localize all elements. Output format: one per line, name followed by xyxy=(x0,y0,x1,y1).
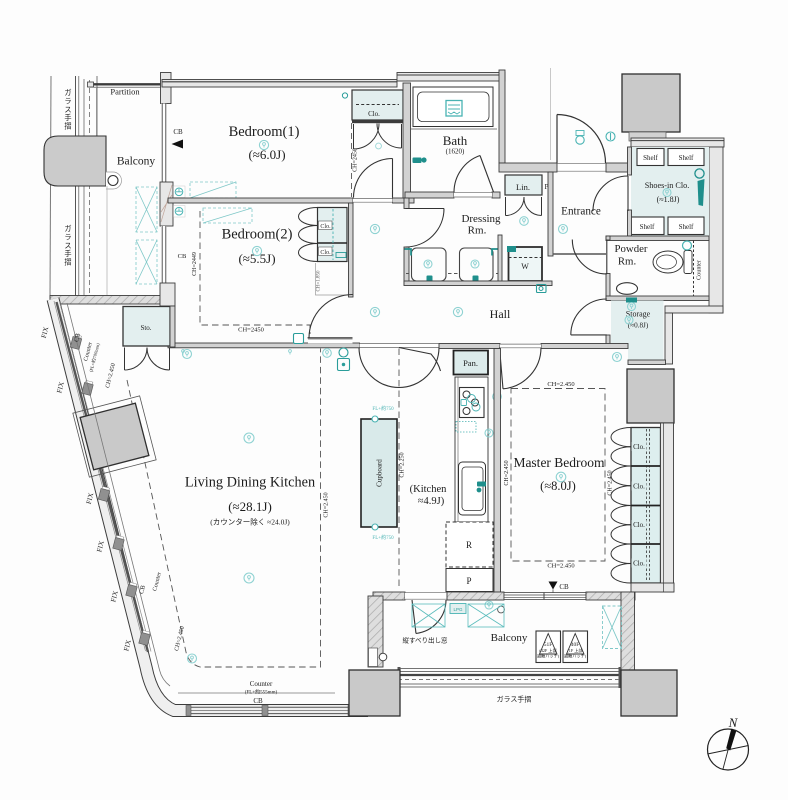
svg-text:(1620): (1620) xyxy=(446,148,465,156)
svg-text:Rm.: Rm. xyxy=(468,225,487,237)
svg-text:縦すべり出し窓: 縦すべり出し窓 xyxy=(402,636,448,645)
svg-text:Lin.: Lin. xyxy=(516,182,530,192)
svg-text:CH=2450: CH=2450 xyxy=(238,327,264,334)
svg-text:LPG: LPG xyxy=(453,607,463,612)
svg-text:Shelf: Shelf xyxy=(640,223,655,231)
svg-text:(≈6.0J): (≈6.0J) xyxy=(248,147,285,162)
svg-text:CB: CB xyxy=(559,583,569,591)
svg-text:Rm.: Rm. xyxy=(618,256,636,268)
svg-text:Hall: Hall xyxy=(490,307,511,321)
svg-text:Partition: Partition xyxy=(110,87,140,97)
svg-text:Counter: Counter xyxy=(696,260,703,280)
svg-text:(Kitchen: (Kitchen xyxy=(410,484,447,495)
svg-text:Clo.: Clo. xyxy=(633,443,645,451)
svg-text:避難ハッチ): 避難ハッチ) xyxy=(537,653,560,660)
svg-text:Balcony: Balcony xyxy=(491,632,528,644)
svg-text:Cupboard: Cupboard xyxy=(376,459,384,487)
svg-text:避難ハッチ): 避難ハッチ) xyxy=(564,653,587,660)
svg-text:Clo.: Clo. xyxy=(633,560,645,568)
svg-text:CH=2449: CH=2449 xyxy=(192,252,198,276)
svg-text:Balcony: Balcony xyxy=(117,156,156,168)
svg-text:Clo.: Clo. xyxy=(633,483,645,491)
svg-text:ガラス手摺: ガラス手摺 xyxy=(497,695,532,704)
svg-text:(≈0.8J): (≈0.8J) xyxy=(628,322,649,330)
svg-text:CH=2.450: CH=2.450 xyxy=(504,460,510,485)
svg-text:Sto.: Sto. xyxy=(140,324,151,332)
svg-text:P: P xyxy=(466,576,471,586)
svg-text:Shelf: Shelf xyxy=(643,154,658,162)
svg-text:W: W xyxy=(521,262,529,271)
svg-text:≈4.9J): ≈4.9J) xyxy=(418,496,445,507)
svg-text:Pan.: Pan. xyxy=(463,358,478,368)
svg-text:Dressing: Dressing xyxy=(461,213,501,225)
svg-text:Powder: Powder xyxy=(615,243,648,255)
svg-text:FL+約750: FL+約750 xyxy=(372,405,394,412)
svg-text:(FL+約555mm): (FL+約555mm) xyxy=(245,689,278,696)
svg-text:Bedroom(1): Bedroom(1) xyxy=(229,124,300,140)
svg-text:Master Bedroom: Master Bedroom xyxy=(513,455,605,470)
svg-text:ガラス手摺: ガラス手摺 xyxy=(64,224,71,267)
svg-text:Clo.: Clo. xyxy=(368,110,380,118)
svg-text:FL+約750: FL+約750 xyxy=(372,534,394,541)
svg-text:Living Dining Kitchen: Living Dining Kitchen xyxy=(185,475,315,491)
svg-text:CB: CB xyxy=(253,697,263,705)
svg-text:(カウンター除く ≈24.0J): (カウンター除く ≈24.0J) xyxy=(210,517,290,527)
svg-text:CB: CB xyxy=(178,253,187,260)
svg-text:CH=2.450: CH=2.450 xyxy=(324,492,330,517)
svg-text:CH=1.850: CH=1.850 xyxy=(317,270,322,292)
svg-text:Shelf: Shelf xyxy=(679,154,694,162)
svg-text:CB: CB xyxy=(173,128,183,136)
svg-text:Clo.: Clo. xyxy=(320,250,331,256)
svg-text:Shelf: Shelf xyxy=(679,223,694,231)
svg-text:Clo.: Clo. xyxy=(633,521,645,529)
svg-text:CH=2.250: CH=2.250 xyxy=(400,452,406,477)
svg-text:CH=2.450: CH=2.450 xyxy=(547,381,574,388)
svg-text:CH=2.450: CH=2.450 xyxy=(547,563,574,570)
svg-text:CH=2450: CH=2450 xyxy=(353,148,359,172)
svg-text:R: R xyxy=(466,540,472,550)
svg-text:Bath: Bath xyxy=(443,133,468,148)
svg-text:Storage: Storage xyxy=(626,310,651,319)
svg-text:Entrance: Entrance xyxy=(561,206,601,218)
svg-text:Counter: Counter xyxy=(250,680,273,688)
svg-text:ガラス手摺: ガラス手摺 xyxy=(64,88,71,131)
svg-text:N: N xyxy=(728,715,739,730)
svg-text:(≈28.1J): (≈28.1J) xyxy=(228,499,272,514)
svg-text:Clo.: Clo. xyxy=(320,224,331,230)
svg-text:Bedroom(2): Bedroom(2) xyxy=(222,227,293,243)
